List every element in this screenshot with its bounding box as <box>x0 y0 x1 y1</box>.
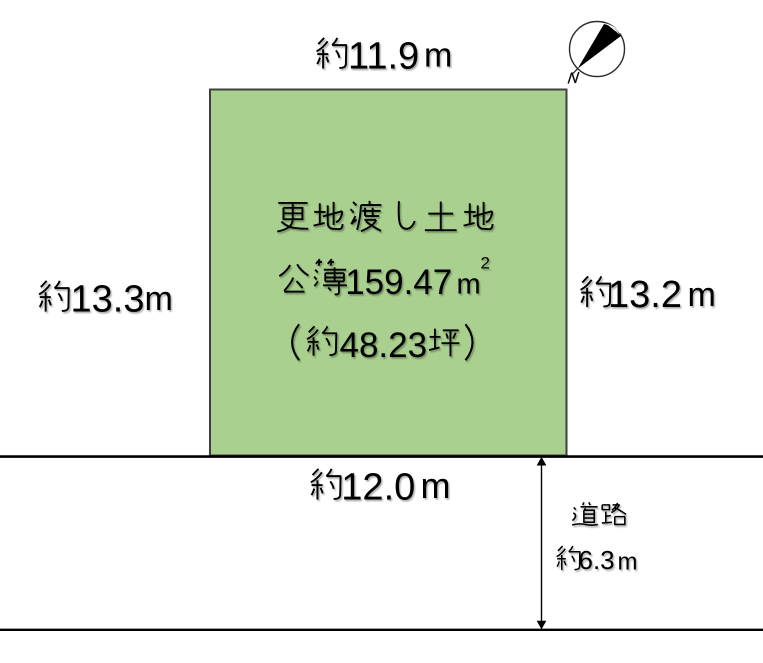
svg-text:159.47: 159.47 <box>345 263 452 302</box>
svg-text:11.9: 11.9 <box>348 36 419 78</box>
svg-text:m: m <box>421 465 451 506</box>
svg-text:m: m <box>457 269 481 301</box>
svg-text:12.0: 12.0 <box>341 467 415 509</box>
svg-text:m: m <box>145 280 173 318</box>
svg-text:m: m <box>688 276 716 314</box>
svg-text:13.2: 13.2 <box>608 274 682 316</box>
svg-text:m: m <box>424 37 452 75</box>
svg-text:13.3: 13.3 <box>71 279 145 321</box>
svg-text:48.23: 48.23 <box>340 326 428 365</box>
svg-text:2: 2 <box>481 254 490 273</box>
svg-text:6.3: 6.3 <box>579 545 615 575</box>
svg-text:m: m <box>618 549 638 576</box>
